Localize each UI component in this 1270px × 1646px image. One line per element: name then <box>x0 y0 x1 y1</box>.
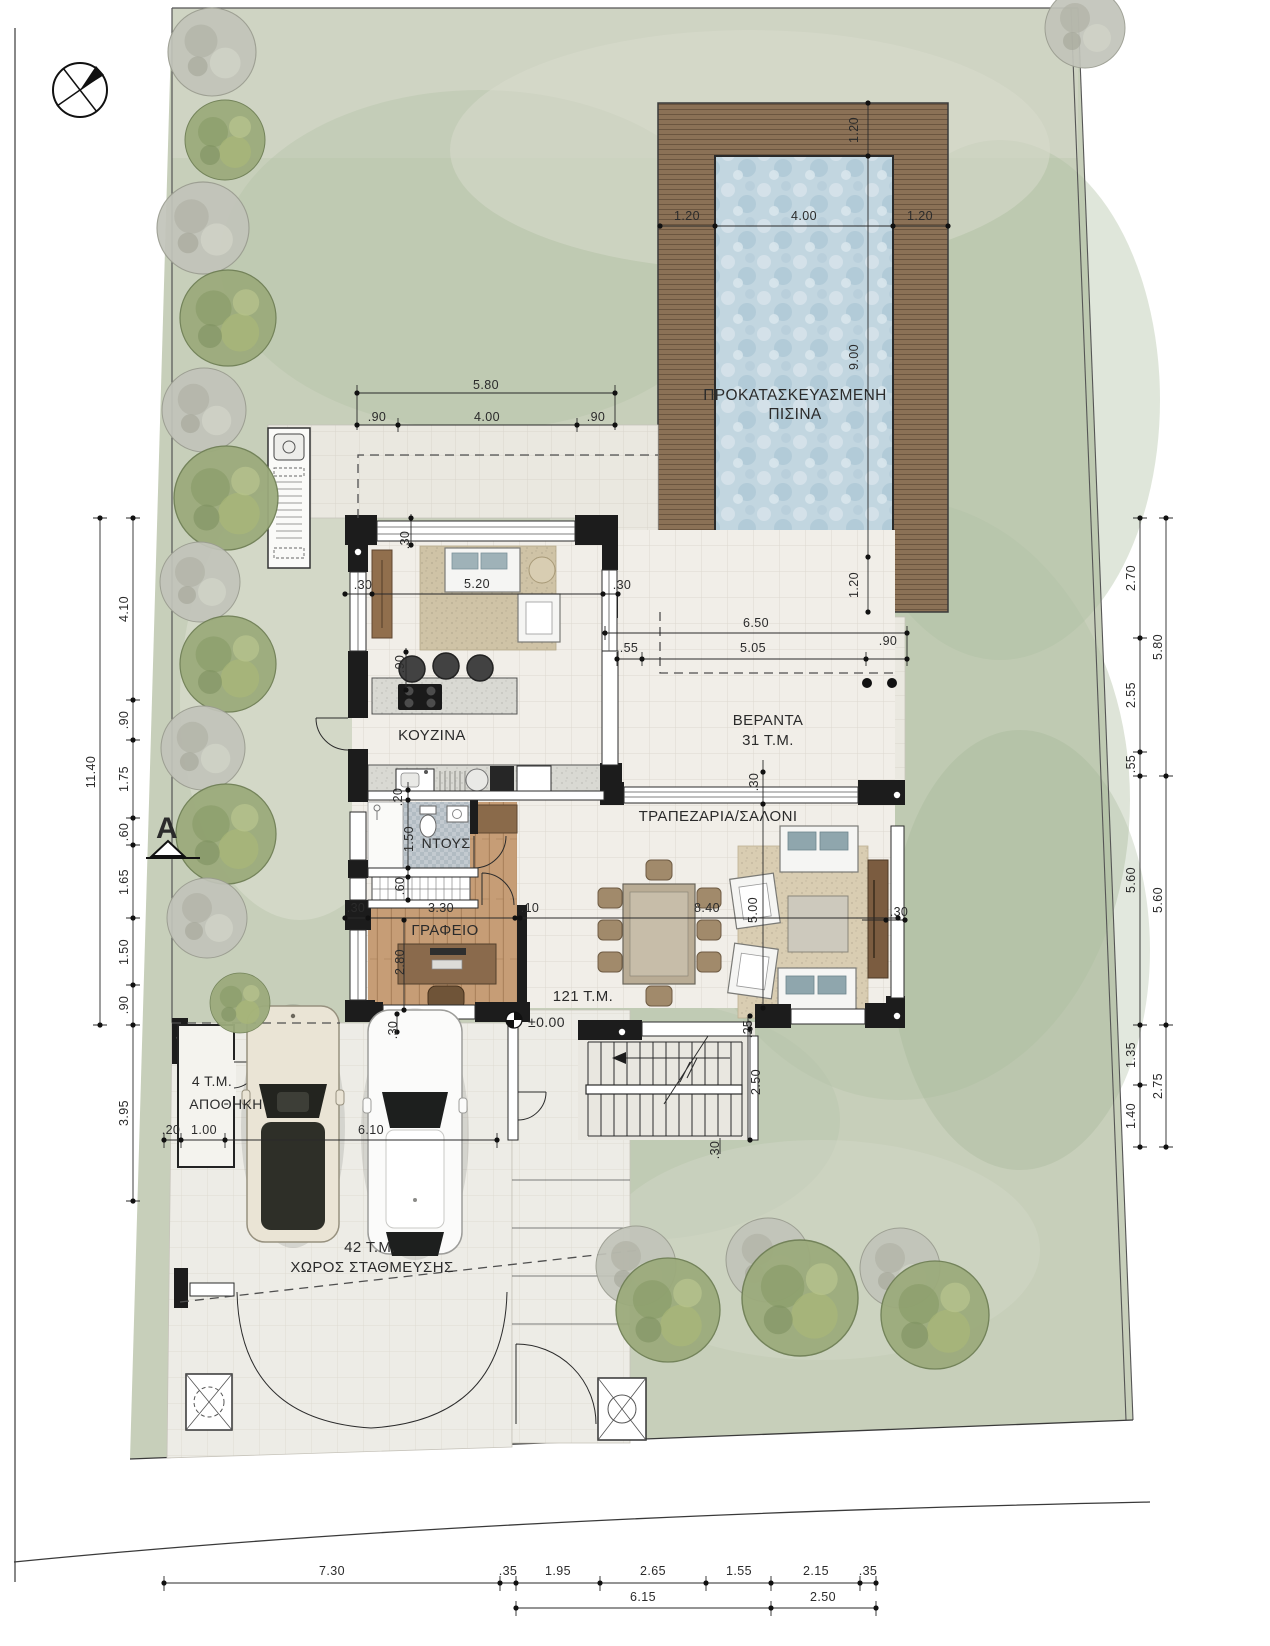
toilet <box>420 815 436 837</box>
dimension-label: 11.40 <box>84 756 98 788</box>
dimension-label: .30 <box>354 578 373 592</box>
dim-node-dot <box>1163 1022 1168 1027</box>
dim-node-dot <box>768 1580 773 1585</box>
dimension-label: .90 <box>879 634 898 648</box>
dim-node-dot <box>863 656 868 661</box>
dim-node-dot <box>904 656 909 661</box>
dimension-label: .30 <box>747 773 761 792</box>
floor-plan-sheet: ΠΡΟΚΑΤΑΣΚΕΥΑΣΜΕΝΗΠΙΣΙΝΑΚΟΥΖΙΝΑΝΤΟΥΣΓΡΑΦΕ… <box>0 0 1270 1646</box>
dim-node-dot <box>760 769 765 774</box>
dim-node-dot <box>513 1605 518 1610</box>
dim-node-dot <box>873 1580 878 1585</box>
label-office: ΓΡΑΦΕΙΟ <box>411 922 478 939</box>
dim-node-dot <box>405 797 410 802</box>
dim-node-dot <box>130 982 135 987</box>
dim-node-dot <box>887 678 897 688</box>
dimension-label: 1.50 <box>402 826 416 852</box>
dimension-label: .30 <box>708 1141 722 1160</box>
dim-node-dot <box>130 515 135 520</box>
dimension-label: 5.20 <box>464 577 490 591</box>
dimension-label: .90 <box>117 996 131 1015</box>
dim-node-dot <box>1163 515 1168 520</box>
label-veranda-area: 31 Τ.Μ. <box>742 732 794 749</box>
label-living-dining: ΤΡΑΠΕΖΑΡΙΑ/ΣΑΛΟΝΙ <box>639 808 798 825</box>
dim-node-dot <box>1163 1144 1168 1149</box>
dim-node-dot <box>130 1198 135 1203</box>
pool-title-line1: ΠΡΟΚΑΤΑΣΚΕΥΑΣΜΕΝΗ <box>703 387 887 404</box>
kitchen-island <box>372 678 517 714</box>
dim-node-dot <box>890 223 895 228</box>
dim-node-dot <box>97 515 102 520</box>
dimension-label: 1.50 <box>117 939 131 965</box>
dimension-label: .35 <box>859 1564 878 1578</box>
dim-node-dot <box>612 390 617 395</box>
dimension-label: .35 <box>499 1564 518 1578</box>
dim-node-dot <box>862 678 872 688</box>
dim-node-dot <box>513 1580 518 1585</box>
dim-node-dot <box>1163 773 1168 778</box>
dim-node-dot <box>365 915 370 920</box>
label-parking-area: 42 Τ.Μ. <box>344 1239 396 1256</box>
dim-node-dot <box>612 422 617 427</box>
dim-node-dot <box>747 1013 752 1018</box>
dim-node-dot <box>403 687 408 692</box>
pool-title-line2: ΠΙΣΙΝΑ <box>768 406 822 423</box>
dim-node-dot <box>1137 635 1142 640</box>
label-floor-level: ±0.00 <box>528 1014 565 1030</box>
label-storage: ΑΠΟΘΗΚΗ <box>189 1096 263 1112</box>
dim-node-dot <box>354 422 359 427</box>
dim-node-dot <box>600 591 605 596</box>
label-parking: ΧΩΡΟΣ ΣΤΑΘΜΕΥΣΗΣ <box>290 1259 453 1276</box>
dim-node-dot <box>747 1137 752 1142</box>
dim-node-dot <box>639 656 644 661</box>
dim-node-dot <box>865 554 870 559</box>
dimension-label: .20 <box>162 1123 181 1137</box>
dimension-label: .90 <box>368 410 387 424</box>
dim-node-dot <box>178 1137 183 1142</box>
dim-node-dot <box>403 649 408 654</box>
dim-node-dot <box>222 1137 227 1142</box>
closet <box>372 877 470 902</box>
dimension-label: 2.70 <box>1124 565 1138 591</box>
dimension-label: 3.30 <box>428 901 454 915</box>
dimension-label: 1.55 <box>726 1564 752 1578</box>
dimension-label: 8.40 <box>694 901 720 915</box>
dimension-label: .90 <box>393 655 407 674</box>
dimension-label: 3.95 <box>117 1100 131 1126</box>
dim-node-dot <box>574 422 579 427</box>
dimension-label: 6.15 <box>630 1590 656 1604</box>
dimension-label: 1.95 <box>545 1564 571 1578</box>
dimension-label: 5.05 <box>740 641 766 655</box>
dimension-label: 2.75 <box>1151 1073 1165 1099</box>
dimension-label: 1.00 <box>191 1123 217 1137</box>
dim-node-dot <box>760 801 765 806</box>
dimension-label: 5.00 <box>746 897 760 923</box>
dimension-label: .60 <box>117 823 131 842</box>
dimension-label: 1.35 <box>1124 1042 1138 1068</box>
dim-node-dot <box>883 917 888 922</box>
dim-node-dot <box>394 1011 399 1016</box>
dim-node-dot <box>512 915 517 920</box>
fridge <box>517 766 551 794</box>
dim-node-dot <box>161 1137 166 1142</box>
dim-node-dot <box>615 591 620 596</box>
dim-node-dot <box>395 422 400 427</box>
dim-node-dot <box>760 1005 765 1010</box>
dim-node-dot <box>130 815 135 820</box>
dimension-label: 5.80 <box>1151 634 1165 660</box>
label-kitchen: ΚΟΥΖΙΝΑ <box>398 727 466 744</box>
dimension-label: .30 <box>347 901 366 915</box>
dimension-label: 1.20 <box>907 209 933 223</box>
dim-node-dot <box>768 1605 773 1610</box>
dimension-label: 2.55 <box>1124 682 1138 708</box>
shower-tray <box>368 802 403 868</box>
dimension-label: .55 <box>620 641 639 655</box>
dim-node-dot <box>130 915 135 920</box>
coffee-table <box>788 896 848 952</box>
small-sink <box>466 769 488 791</box>
dimension-label: 1.20 <box>847 117 861 143</box>
dim-node-dot <box>354 390 359 395</box>
dimension-label: 4.00 <box>474 410 500 424</box>
dimension-label: 2.65 <box>640 1564 666 1578</box>
washbasin <box>447 806 468 822</box>
dimension-label: .25 <box>741 1020 755 1039</box>
dimension-label: 5.80 <box>473 378 499 392</box>
dimension-label: 4.00 <box>791 209 817 223</box>
dimension-label: 1.40 <box>1124 1103 1138 1129</box>
dim-node-dot <box>342 915 347 920</box>
dimension-label: .30 <box>386 1021 400 1040</box>
dim-node-dot <box>1137 773 1142 778</box>
level-marker-symbol <box>506 1012 522 1028</box>
dim-node-dot <box>130 1022 135 1027</box>
outdoor-sink <box>274 434 304 460</box>
dim-node-dot <box>1137 1144 1142 1149</box>
pouf <box>529 557 555 583</box>
dimension-label: 1.20 <box>847 572 861 598</box>
dim-node-dot <box>405 897 410 902</box>
dimension-label: .30 <box>398 531 412 550</box>
dimension-label: 1.75 <box>117 766 131 792</box>
bar-stool <box>433 653 459 679</box>
dimension-label: 1.20 <box>674 209 700 223</box>
dimension-label: 2.50 <box>810 1590 836 1604</box>
dim-node-dot <box>712 223 717 228</box>
dimension-label: 6.50 <box>743 616 769 630</box>
section-marker-letter: A <box>156 812 178 845</box>
dim-node-dot <box>657 223 662 228</box>
dim-node-dot <box>517 915 522 920</box>
dim-node-dot <box>865 609 870 614</box>
dim-node-dot <box>703 1580 708 1585</box>
dim-node-dot <box>130 697 135 702</box>
dim-node-dot <box>865 100 870 105</box>
dim-node-dot <box>401 1007 406 1012</box>
dimension-label: .60 <box>393 877 407 896</box>
dim-node-dot <box>945 223 950 228</box>
dimension-label: 2.15 <box>803 1564 829 1578</box>
oven <box>490 766 514 794</box>
dim-node-dot <box>614 656 619 661</box>
dimension-label: .20 <box>391 788 405 807</box>
dimension-label: 2.50 <box>749 1069 763 1095</box>
dim-node-dot <box>1137 749 1142 754</box>
dim-node-dot <box>857 1580 862 1585</box>
label-storage-area: 4 Τ.Μ. <box>192 1073 232 1089</box>
dim-node-dot <box>130 842 135 847</box>
dimension-label: .30 <box>613 578 632 592</box>
label-veranda: ΒΕΡΑΝΤΑ <box>733 712 804 729</box>
dimension-label: .90 <box>117 711 131 730</box>
dim-node-dot <box>873 1605 878 1610</box>
dim-node-dot <box>1137 1022 1142 1027</box>
dimension-label: 1.65 <box>117 869 131 895</box>
dim-node-dot <box>1137 1082 1142 1087</box>
dim-node-dot <box>401 917 406 922</box>
dim-node-dot <box>602 630 607 635</box>
dimension-label: 5.60 <box>1124 867 1138 893</box>
dimension-label: .55 <box>1124 755 1138 774</box>
dim-node-dot <box>865 153 870 158</box>
dim-node-dot <box>405 787 410 792</box>
dim-node-dot <box>904 630 909 635</box>
dim-node-dot <box>161 1580 166 1585</box>
bar-stool <box>467 655 493 681</box>
car-suv-cream <box>241 1004 345 1248</box>
dim-node-dot <box>497 1580 502 1585</box>
stair-handrail <box>586 1085 742 1094</box>
dim-node-dot <box>597 1580 602 1585</box>
dim-node-dot <box>130 737 135 742</box>
dim-node-dot <box>1137 515 1142 520</box>
dimension-label: 4.10 <box>117 596 131 622</box>
label-house-area: 121 Τ.Μ. <box>553 988 613 1005</box>
hall-cabinet <box>477 805 517 833</box>
dim-node-dot <box>369 591 374 596</box>
dimension-label: 5.60 <box>1151 887 1165 913</box>
dimension-label: 7.30 <box>319 1564 345 1578</box>
dim-node-dot <box>494 1137 499 1142</box>
dimension-label: 6.10 <box>358 1123 384 1137</box>
dimension-label: .90 <box>587 410 606 424</box>
dimension-label: 2.80 <box>393 949 407 975</box>
dimension-label: 9.00 <box>847 344 861 370</box>
dimension-label: .30 <box>890 905 909 919</box>
dim-node-dot <box>408 515 413 520</box>
dim-node-dot <box>342 591 347 596</box>
dim-node-dot <box>97 1022 102 1027</box>
dim-node-dot <box>405 865 410 870</box>
label-shower: ΝΤΟΥΣ <box>422 835 471 851</box>
window-band-living <box>624 787 858 803</box>
site-plan-drawing: ΠΡΟΚΑΤΑΣΚΕΥΑΣΜΕΝΗΠΙΣΙΝΑΚΟΥΖΙΝΑΝΤΟΥΣΓΡΑΦΕ… <box>0 0 1270 1646</box>
dimension-label: .10 <box>521 901 540 915</box>
